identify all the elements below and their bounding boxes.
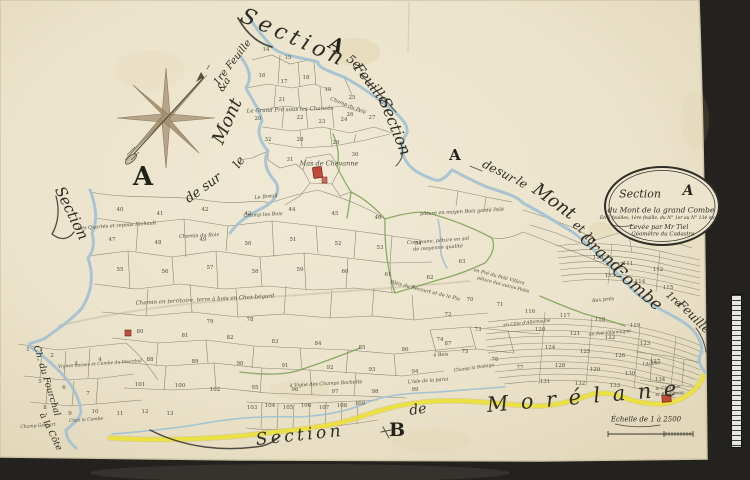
building-annex — [322, 177, 327, 183]
scale-bar-label: Échelle de 1 à 2500 — [611, 417, 681, 424]
scanned-cadastral-map: SectionA5eFeuilleSection1re Feuille&aMon… — [0, 0, 750, 480]
cartouche-role: Géomètre du Cadastre — [631, 232, 694, 238]
map-artwork — [0, 0, 750, 480]
building-mas-de-chevanne — [312, 166, 322, 178]
cartouche-title: du Mont de la grand Combe — [608, 206, 715, 214]
building-clos-bourgeois — [662, 395, 672, 403]
cartouche-section-letter: A — [683, 184, 694, 198]
ruler — [731, 294, 742, 448]
cartouche-subtitle: En 5 feuilles, 1ère feuille, du N° 1er a… — [600, 216, 722, 221]
cartouche-surveyor: Levée par Mr Tiel — [630, 224, 689, 231]
cartouche-section-word: Section — [619, 189, 661, 200]
building-small — [125, 330, 131, 336]
